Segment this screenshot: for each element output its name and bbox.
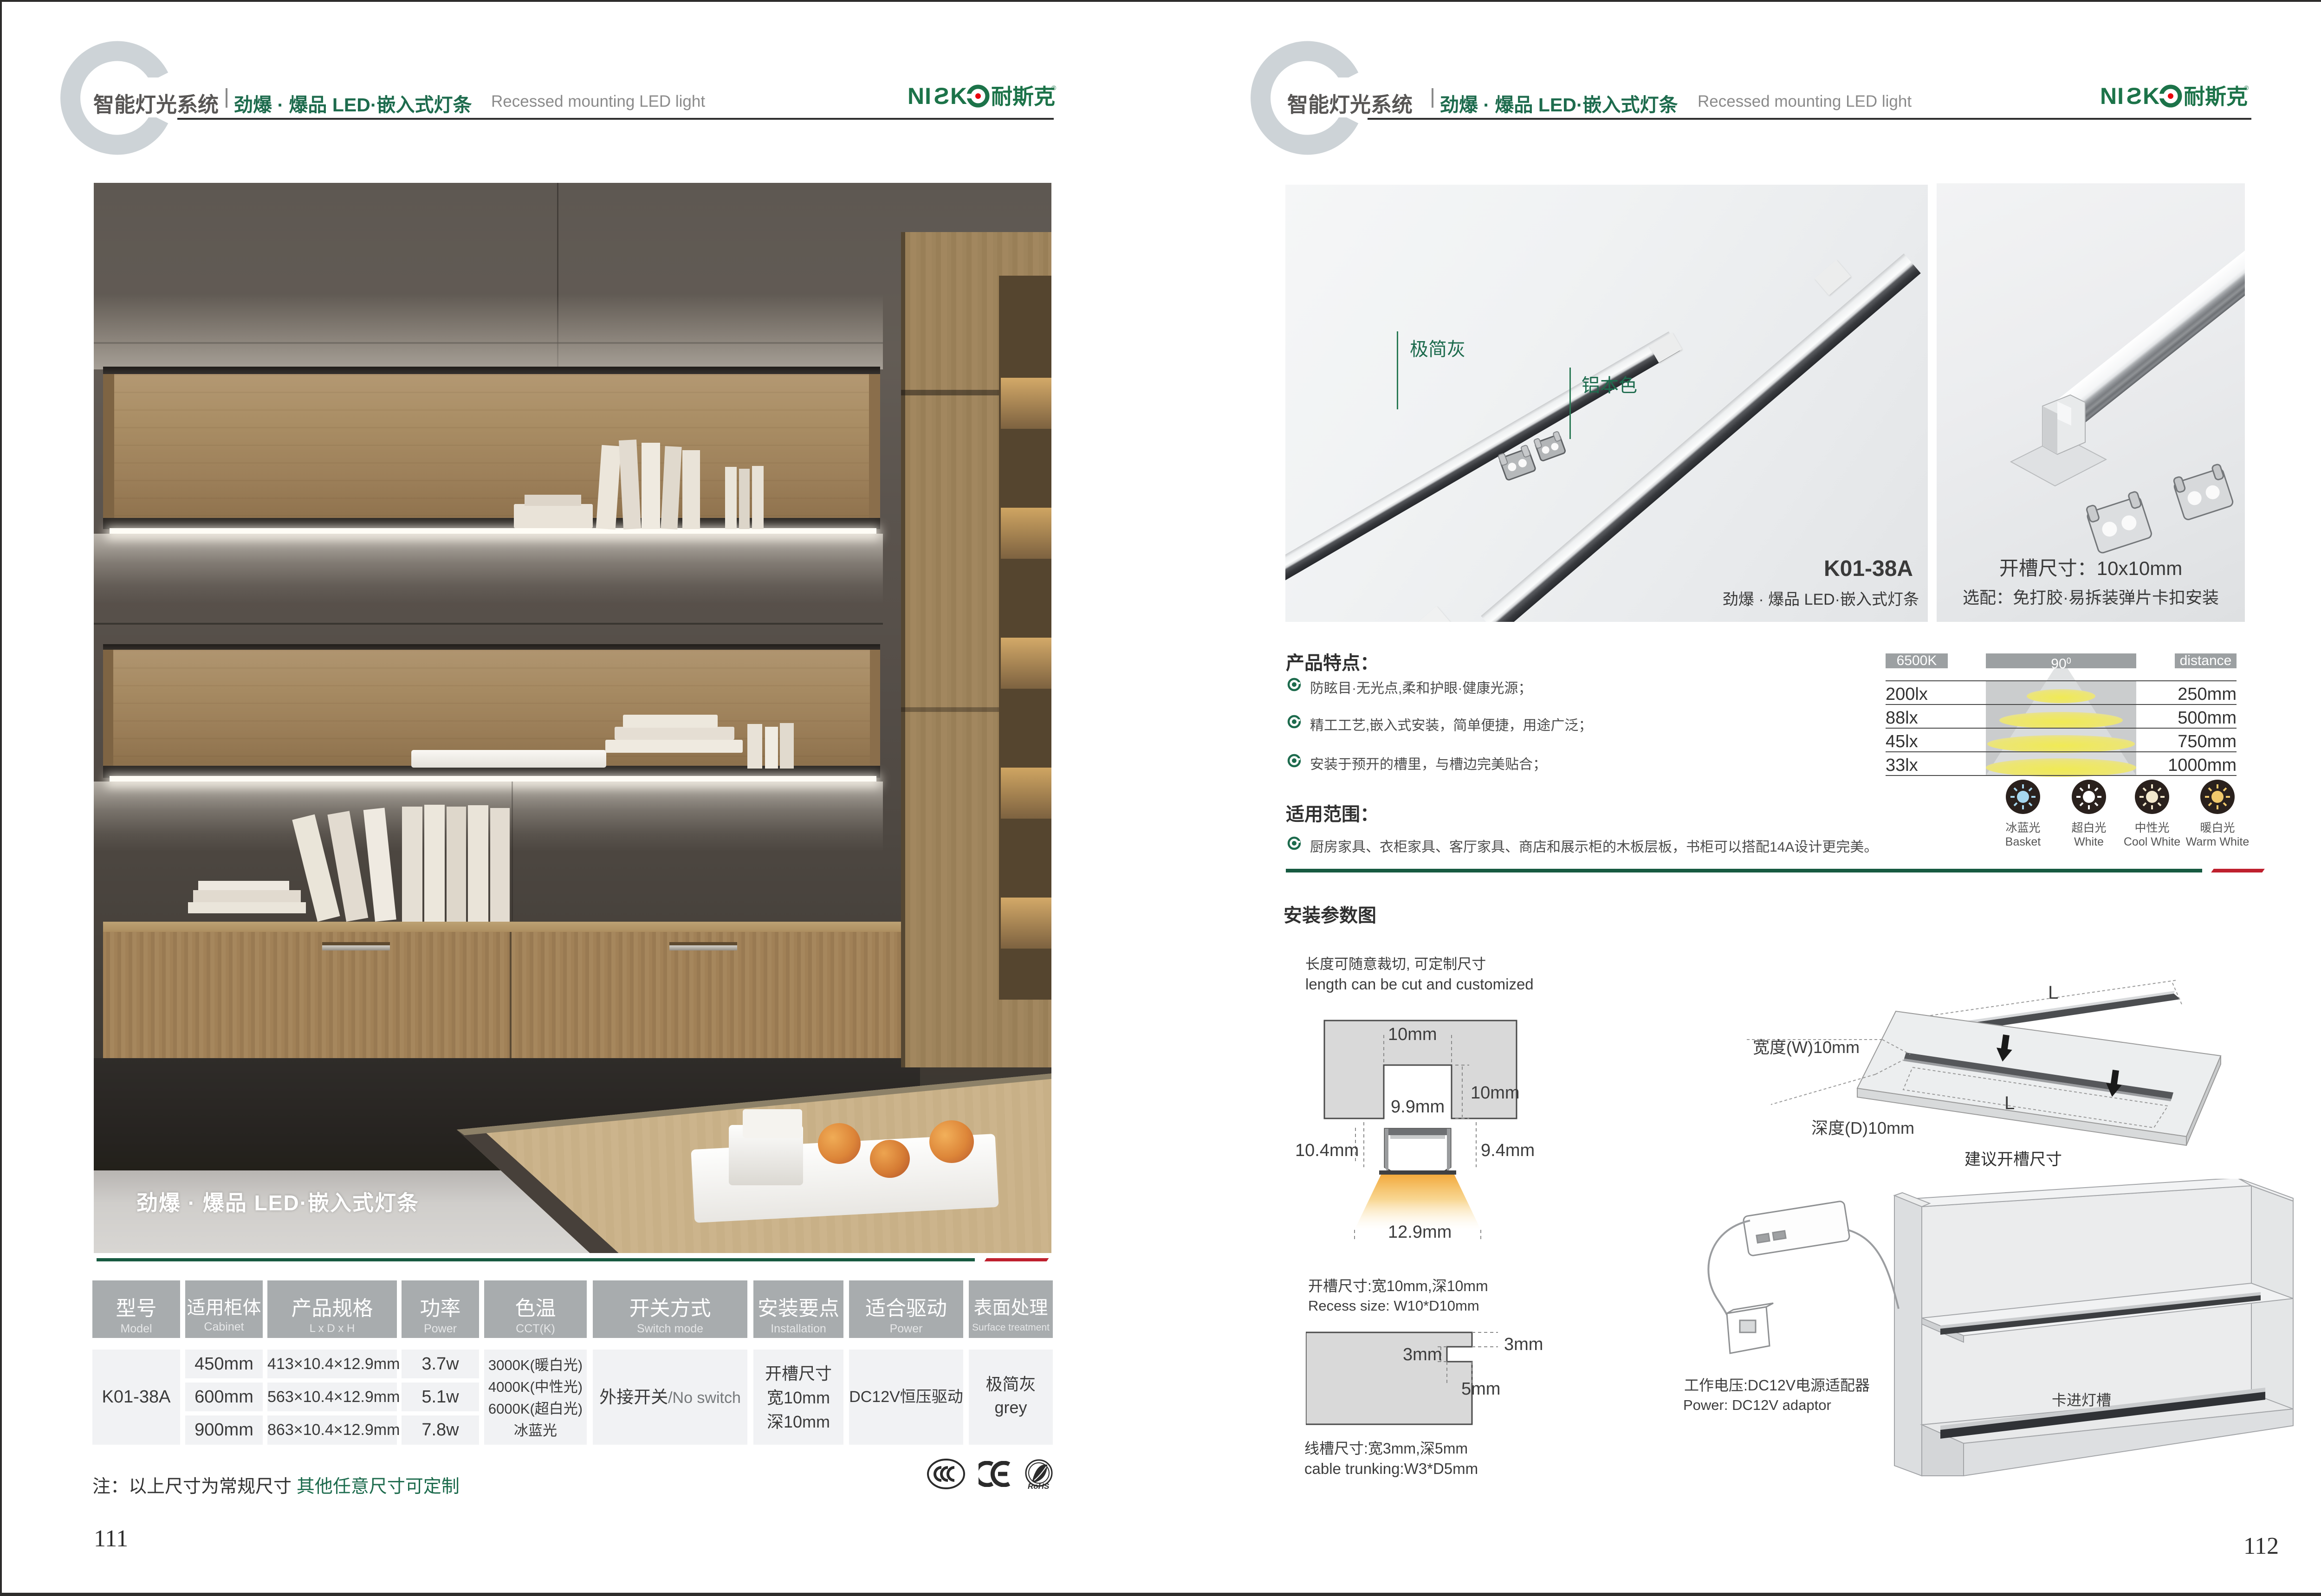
svg-text:耐斯克: 耐斯克 <box>2184 84 2248 109</box>
svg-text:K: K <box>950 84 967 109</box>
svg-text:®: ® <box>1051 84 1056 91</box>
svg-text:卡进灯槽: 卡进灯槽 <box>2052 1392 2111 1409</box>
svg-text:L: L <box>2004 1093 2015 1113</box>
svg-text:®: ® <box>2244 84 2249 91</box>
svg-text:RoHS: RoHS <box>1028 1482 1050 1491</box>
svg-text:NI: NI <box>2100 84 2124 109</box>
svg-text:耐斯克: 耐斯克 <box>991 84 1055 109</box>
svg-text:NI: NI <box>908 84 932 109</box>
svg-text:S: S <box>934 84 949 109</box>
svg-text:L: L <box>2048 982 2058 1003</box>
svg-text:S: S <box>2127 84 2142 109</box>
svg-text:K: K <box>2143 84 2159 109</box>
